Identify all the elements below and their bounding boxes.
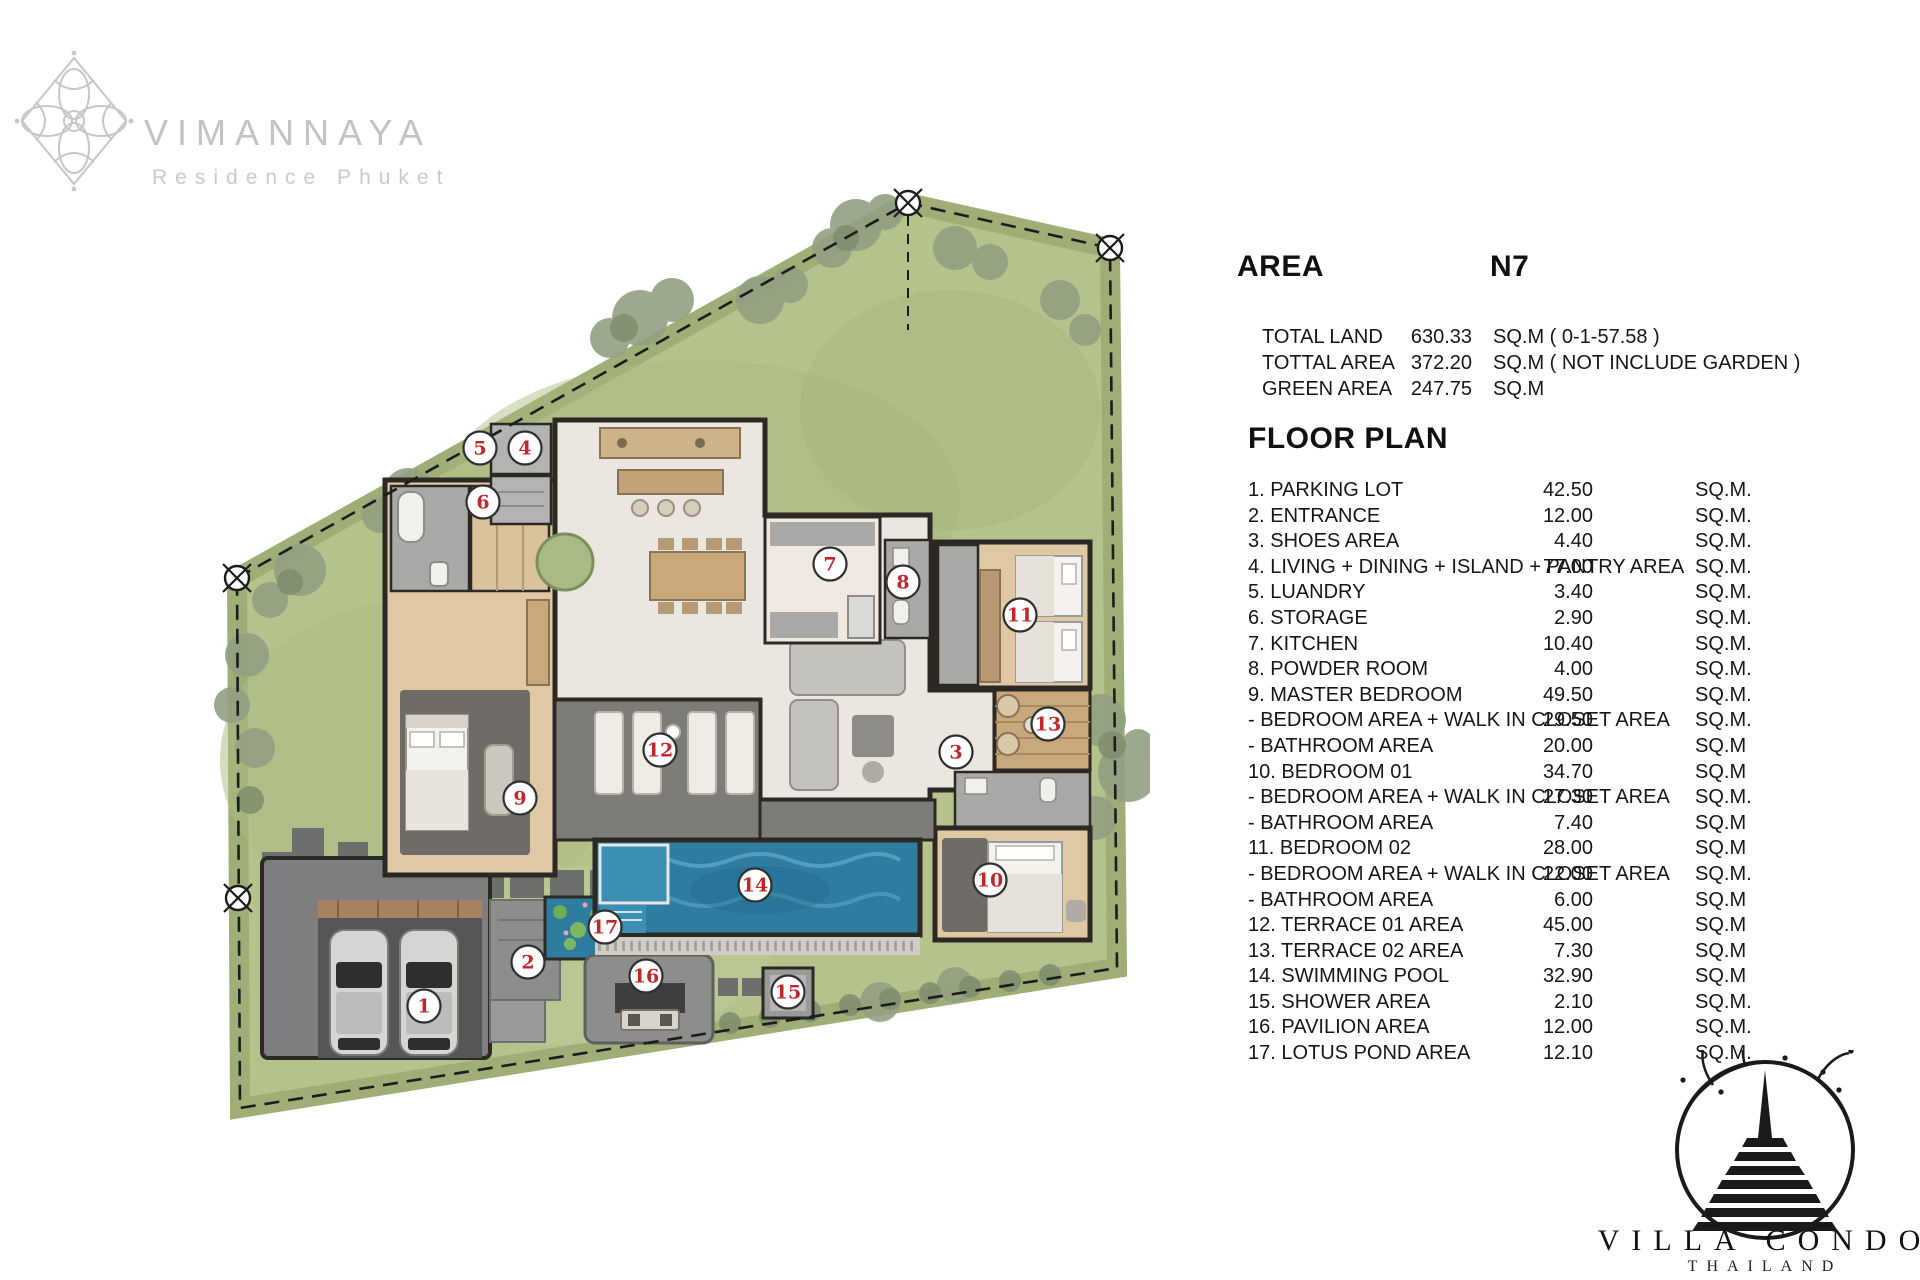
room-number-label: 6 — [467, 486, 500, 519]
area-panel-title: AREA — [1237, 250, 1324, 284]
room-number-label: 1 — [408, 990, 441, 1023]
row-value: 45.00 — [1248, 914, 1593, 937]
room-number-label: 4 — [509, 432, 542, 465]
svg-text:11: 11 — [1007, 605, 1033, 627]
svg-text:4: 4 — [518, 438, 531, 460]
svg-text:6: 6 — [476, 492, 489, 514]
survey-marker-icon — [1096, 234, 1124, 262]
table-row: - BEDROOM AREA + WALK IN CLOSET AREA27.3… — [1248, 786, 1908, 812]
row-unit: SQ.M. — [1695, 530, 1752, 553]
table-row: 6. STORAGE2.90SQ.M. — [1248, 607, 1908, 633]
table-row: - BEDROOM AREA + WALK IN CLOSET AREA29.5… — [1248, 709, 1908, 735]
room-number-label: 2 — [512, 946, 545, 979]
row-unit: SQ.M. — [1695, 581, 1752, 604]
svg-text:7: 7 — [823, 554, 836, 576]
table-row: - BATHROOM AREA6.00SQ.M — [1248, 889, 1908, 915]
row-value: 49.50 — [1248, 684, 1593, 707]
table-row: 3. SHOES AREA4.40SQ.M. — [1248, 530, 1908, 556]
row-value: 22.00 — [1248, 863, 1593, 886]
table-row: 8. POWDER ROOM4.00SQ.M. — [1248, 658, 1908, 684]
row-value: 7.40 — [1248, 812, 1593, 835]
row-value: 29.50 — [1248, 709, 1593, 732]
svg-text:10: 10 — [977, 870, 1003, 892]
row-value: 4.40 — [1248, 530, 1593, 553]
room-number-label: 16 — [630, 960, 663, 993]
row-unit: SQ.M — [1695, 940, 1746, 963]
row-unit: SQ.M. — [1695, 991, 1752, 1014]
table-row: GREEN AREA247.75SQ.M — [1262, 378, 1882, 404]
room-number-label: 12 — [644, 734, 677, 767]
row-value: 7.30 — [1248, 940, 1593, 963]
row-unit: SQ.M. — [1695, 556, 1752, 579]
row-value: 630.33 — [1262, 326, 1472, 349]
row-value: 12.00 — [1248, 1016, 1593, 1039]
row-unit: SQ.M — [1695, 735, 1746, 758]
row-unit: SQ.M ( NOT INCLUDE GARDEN ) — [1493, 352, 1800, 375]
brand-logo: VIMANNAYA Residence Phuket — [14, 50, 444, 200]
spa-corner — [600, 845, 668, 903]
row-value: 12.10 — [1248, 1042, 1593, 1065]
indoor-planter — [537, 534, 593, 590]
row-unit: SQ.M. — [1695, 479, 1752, 502]
row-value: 20.00 — [1248, 735, 1593, 758]
bathroom-01 — [955, 772, 1090, 828]
room-number-label: 9 — [504, 782, 537, 815]
row-unit: SQ.M — [1695, 965, 1746, 988]
survey-marker-icon — [224, 884, 252, 912]
row-unit: SQ.M. — [1695, 709, 1752, 732]
table-row: 9. MASTER BEDROOM49.50SQ.M. — [1248, 684, 1908, 710]
bed — [406, 715, 468, 830]
table-row: - BATHROOM AREA7.40SQ.M — [1248, 812, 1908, 838]
room-number-label: 11 — [1004, 599, 1037, 632]
table-row: 15. SHOWER AREA2.10SQ.M. — [1248, 991, 1908, 1017]
lotus-ornament-icon — [14, 50, 134, 192]
room-number-label: 13 — [1032, 708, 1065, 741]
table-row: 7. KITCHEN10.40SQ.M. — [1248, 633, 1908, 659]
room-number-label: 5 — [464, 432, 497, 465]
floorplan-panel-title: FLOOR PLAN — [1248, 422, 1448, 456]
svg-text:14: 14 — [742, 875, 768, 897]
table-row: 13. TERRACE 02 AREA7.30SQ.M — [1248, 940, 1908, 966]
svg-text:3: 3 — [949, 742, 962, 764]
row-value: 4.00 — [1248, 658, 1593, 681]
row-value: 12.00 — [1248, 505, 1593, 528]
row-value: 42.50 — [1248, 479, 1593, 502]
row-unit: SQ.M — [1695, 889, 1746, 912]
svg-text:1: 1 — [417, 996, 430, 1018]
row-value: 32.90 — [1248, 965, 1593, 988]
svg-text:17: 17 — [592, 917, 618, 939]
svg-text:5: 5 — [473, 438, 486, 460]
table-row: 14. SWIMMING POOL32.90SQ.M — [1248, 965, 1908, 991]
room-number-label: 15 — [772, 976, 805, 1009]
table-row: TOTAL LAND630.33SQ.M ( 0-1-57.58 ) — [1262, 326, 1882, 352]
table-row: 16. PAVILION AREA12.00SQ.M. — [1248, 1016, 1908, 1042]
room-number-label: 14 — [739, 869, 772, 902]
room-number-label: 3 — [940, 736, 973, 769]
row-unit: SQ.M — [1695, 914, 1746, 937]
room-number-label: 8 — [887, 566, 920, 599]
site-plan: 1234567891011121314151617 — [150, 180, 1150, 1130]
svg-text:16: 16 — [633, 966, 659, 988]
table-row: TOTTAL AREA372.20SQ.M ( NOT INCLUDE GARD… — [1262, 352, 1882, 378]
row-value: 3.40 — [1248, 581, 1593, 604]
svg-text:13: 13 — [1035, 714, 1061, 736]
survey-marker-icon — [894, 189, 922, 217]
row-unit: SQ.M — [1493, 378, 1544, 401]
row-value: 77.00 — [1248, 556, 1593, 579]
table-row: 12. TERRACE 01 AREA45.00SQ.M — [1248, 914, 1908, 940]
room-number-label: 7 — [814, 548, 847, 581]
row-value: 10.40 — [1248, 633, 1593, 656]
table-row: 10. BEDROOM 0134.70SQ.M — [1248, 761, 1908, 787]
row-value: 2.10 — [1248, 991, 1593, 1014]
dining-table — [650, 538, 745, 614]
row-value: 2.90 — [1248, 607, 1593, 630]
table-row: - BEDROOM AREA + WALK IN CLOSET AREA22.0… — [1248, 863, 1908, 889]
table-row: - BATHROOM AREA20.00SQ.M — [1248, 735, 1908, 761]
row-unit: SQ.M — [1695, 812, 1746, 835]
parking-lot — [262, 858, 490, 1058]
floorplan-table: 1. PARKING LOT42.50SQ.M.2. ENTRANCE12.00… — [1248, 479, 1908, 1068]
row-unit: SQ.M. — [1695, 863, 1752, 886]
svg-text:2: 2 — [521, 952, 534, 974]
master-bedroom — [385, 480, 555, 875]
svg-text:8: 8 — [896, 572, 909, 594]
svg-text:15: 15 — [775, 982, 801, 1004]
row-value: 27.30 — [1248, 786, 1593, 809]
row-unit: SQ.M ( 0-1-57.58 ) — [1493, 326, 1660, 349]
row-value: 247.75 — [1262, 378, 1472, 401]
row-value: 34.70 — [1248, 761, 1593, 784]
floorplan-sheet: { "branding": { "name": "VIMANNAYA", "su… — [0, 0, 1920, 1280]
kitchen — [765, 517, 880, 643]
row-unit: SQ.M — [1695, 837, 1746, 860]
row-unit: SQ.M. — [1695, 505, 1752, 528]
villa-condo-name: VILLA CONDO — [1580, 1224, 1920, 1258]
table-row: 2. ENTRANCE12.00SQ.M. — [1248, 505, 1908, 531]
row-unit: SQ.M. — [1695, 786, 1752, 809]
svg-text:9: 9 — [513, 788, 526, 810]
row-unit: SQ.M. — [1695, 633, 1752, 656]
brand-name: VIMANNAYA — [144, 112, 432, 154]
row-unit: SQ.M. — [1695, 684, 1752, 707]
room-number-label: 10 — [974, 864, 1007, 897]
table-row: 4. LIVING + DINING + ISLAND + PANTRY ARE… — [1248, 556, 1908, 582]
unit-code: N7 — [1490, 250, 1529, 284]
area-summary-table: TOTAL LAND630.33SQ.M ( 0-1-57.58 )TOTTAL… — [1262, 326, 1882, 404]
row-unit: SQ.M. — [1695, 658, 1752, 681]
villa-condo-logo-icon — [1580, 1050, 1920, 1250]
row-value: 28.00 — [1248, 837, 1593, 860]
bedroom-01 — [935, 828, 1090, 940]
car — [330, 930, 388, 1055]
table-row: 1. PARKING LOT42.50SQ.M. — [1248, 479, 1908, 505]
survey-marker-icon — [223, 564, 251, 592]
row-unit: SQ.M — [1695, 761, 1746, 784]
row-value: 6.00 — [1248, 889, 1593, 912]
row-unit: SQ.M. — [1695, 607, 1752, 630]
table-row: 5. LUANDRY3.40SQ.M. — [1248, 581, 1908, 607]
row-unit: SQ.M. — [1695, 1016, 1752, 1039]
svg-text:12: 12 — [647, 740, 673, 762]
villa-condo-country: THAILAND — [1580, 1258, 1920, 1276]
room-number-label: 17 — [589, 911, 622, 944]
table-row: 11. BEDROOM 0228.00SQ.M — [1248, 837, 1908, 863]
row-value: 372.20 — [1262, 352, 1472, 375]
